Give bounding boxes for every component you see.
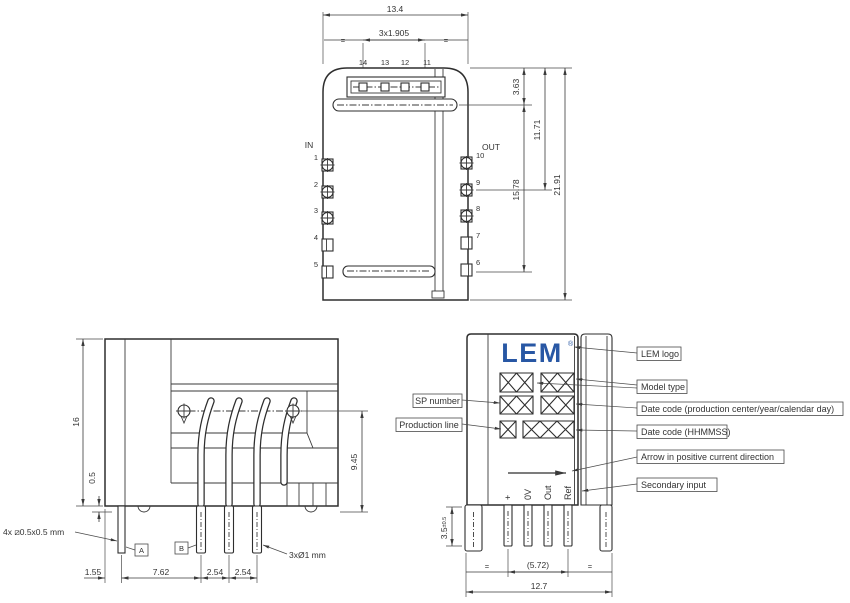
dim-16: 16 — [71, 417, 81, 427]
dim-9-45: 9.45 — [349, 453, 359, 470]
label-in: IN — [305, 140, 314, 150]
dim-2-54-b: 2.54 — [235, 567, 252, 577]
dim-12-7: 12.7 — [531, 581, 548, 591]
dim-13-4: 13.4 — [387, 4, 404, 14]
callout-secondary: Secondary input — [641, 480, 707, 490]
registered-mark-icon: ® — [568, 340, 574, 348]
model-type-field-1 — [500, 373, 533, 392]
front-view: 16 0.5 1.55 7.62 2.54 2.54 9.45 4x ⧄0.5x… — [3, 339, 368, 583]
front-view-body — [105, 339, 338, 506]
pin-label-13: 13 — [381, 58, 389, 67]
dim-2-54-a: 2.54 — [207, 567, 224, 577]
datum-b: B — [179, 544, 184, 553]
dim-1-55: 1.55 — [85, 567, 102, 577]
dim-15-78: 15.78 — [511, 179, 521, 201]
pin-label-ref: Ref — [563, 485, 573, 500]
dim-3-63: 3.63 — [511, 78, 521, 95]
lem-logo: LEM — [501, 338, 563, 368]
equal-mark-side-right: = — [588, 562, 593, 571]
note-round-leader — [263, 545, 287, 554]
pin-label-3: 3 — [314, 206, 318, 215]
pin-label-out: Out — [543, 485, 553, 500]
datum-b-leader — [188, 545, 196, 548]
pin-11 — [421, 83, 429, 91]
pin-13 — [381, 83, 389, 91]
pin-label-2: 2 — [314, 180, 318, 189]
callout-date-code-1: Date code (production center/year/calend… — [641, 404, 834, 414]
top-view: 13.4 3x1.905 = = 14 13 12 11 — [305, 4, 572, 300]
note-square-pins: 4x ⧄0.5x0.5 mm — [3, 527, 64, 537]
pin-label-8: 8 — [476, 204, 480, 213]
callout-lem-logo: LEM logo — [641, 349, 679, 359]
callout-production-line: Production line — [399, 420, 459, 430]
square-pin — [118, 506, 125, 553]
side-view: LEM ® + 0V Out Ref 3.5±0.5 (5.72) = = 12… — [396, 334, 843, 597]
equal-mark-right: = — [444, 36, 449, 45]
pin-label-1: 1 — [314, 153, 318, 162]
callout-arrow: Arrow in positive current direction — [641, 452, 774, 462]
drawing-canvas: 13.4 3x1.905 = = 14 13 12 11 — [0, 0, 850, 603]
dim-pitch: 3x1.905 — [379, 28, 410, 38]
dim-3-5: 3.5±0.5 — [439, 517, 449, 540]
mechanical-drawing-page: 13.4 3x1.905 = = 14 13 12 11 — [0, 0, 850, 603]
equal-mark-left: = — [341, 36, 346, 45]
pin-label-7: 7 — [476, 231, 480, 240]
pin-label-10: 10 — [476, 151, 484, 160]
pin-label-plus: + — [503, 495, 513, 500]
side-legs-pins — [465, 505, 612, 551]
sp-number-field — [500, 396, 533, 414]
datum-a-leader — [126, 547, 135, 550]
pin-label-4: 4 — [314, 233, 318, 242]
callout-sp-number: SP number — [415, 396, 460, 406]
dim-0-5: 0.5 — [87, 472, 97, 484]
pin-label-12: 12 — [401, 58, 409, 67]
bottom-bar — [343, 266, 435, 277]
dim-21-91: 21.91 — [552, 174, 562, 196]
production-line-field — [500, 421, 516, 438]
pin-12 — [401, 83, 409, 91]
dim-5-72: (5.72) — [527, 560, 549, 570]
pin-label-0v: 0V — [523, 489, 533, 500]
pin-label-14: 14 — [359, 58, 367, 67]
callout-model-type: Model type — [641, 382, 685, 392]
model-type-field-2 — [541, 373, 574, 392]
dim-7-62: 7.62 — [153, 567, 170, 577]
pin-label-9: 9 — [476, 178, 480, 187]
date-code-1-field — [541, 396, 574, 414]
pin-14 — [359, 83, 367, 91]
equal-mark-side-left: = — [485, 562, 490, 571]
dim-11-71: 11.71 — [532, 119, 542, 140]
pin-label-5: 5 — [314, 260, 318, 269]
note-round-pins: 3xØ1 mm — [289, 550, 326, 560]
pin-label-6: 6 — [476, 258, 480, 267]
note-square-leader — [75, 532, 117, 541]
callout-date-code-2: Date code (HHMMSS) — [641, 427, 731, 437]
date-code-2-field — [523, 421, 574, 438]
label-out: OUT — [482, 142, 500, 152]
pin-label-11: 11 — [423, 58, 431, 67]
datum-a: A — [139, 546, 144, 555]
